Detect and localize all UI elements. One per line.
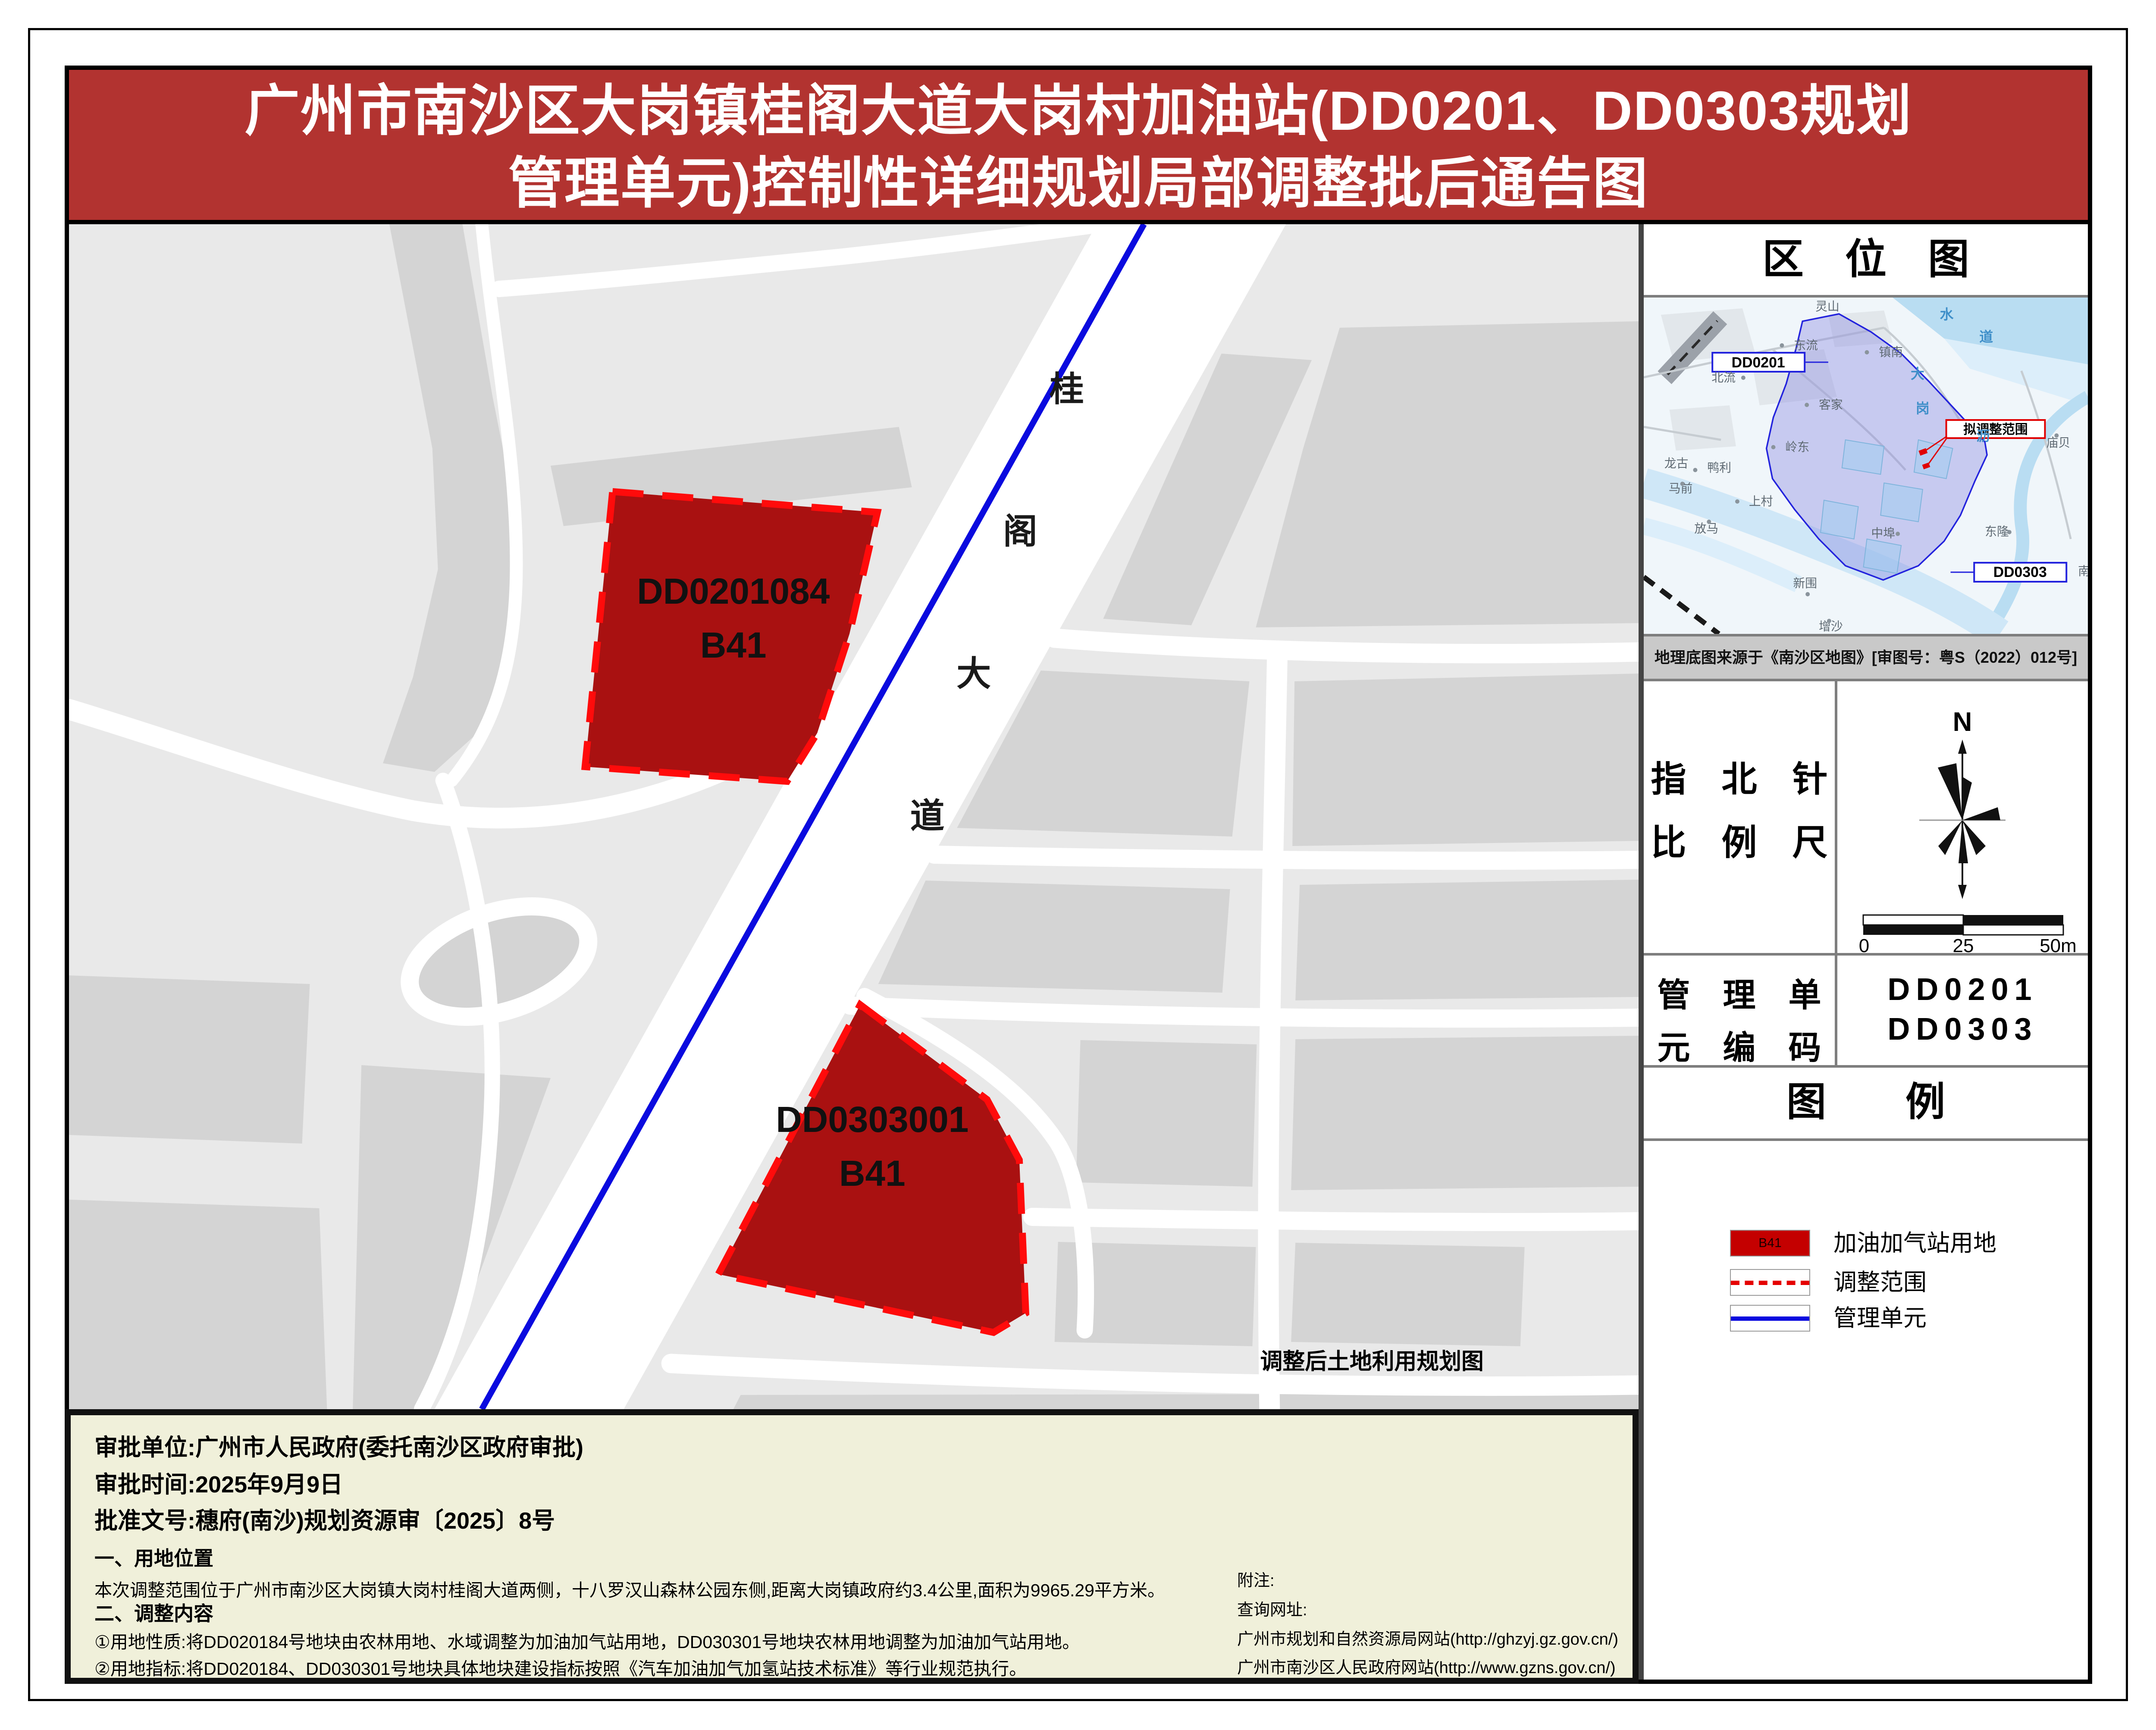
place-label: 放马 xyxy=(1694,522,1718,535)
land-use-map: DD0201084 B41 DD0303001 B41 桂 阁 大 道 调整后土… xyxy=(69,224,1639,1409)
legend-swatch-gas-station: B41 xyxy=(1730,1230,1810,1257)
north-letter: N xyxy=(1953,707,1972,737)
map-caption: 调整后土地利用规划图 xyxy=(1260,1349,1484,1374)
north-arrow-icon xyxy=(1919,740,2006,899)
road-name-char1: 桂 xyxy=(1050,370,1084,408)
notes-url-1: 广州市规划和自然资源局网站(http://ghzyj.gz.gov.cn/) xyxy=(1237,1626,1618,1649)
place-label: 南 xyxy=(2078,564,2088,578)
scale-tick-25: 25 xyxy=(1953,935,1974,953)
scale-bar xyxy=(1863,915,2063,935)
road-name-char2: 阁 xyxy=(1003,512,1037,551)
place-label: 新围 xyxy=(1793,577,1817,590)
adjust-scope-label: 拟调整范围 xyxy=(1963,423,2028,437)
legend-swatch-adjust-scope xyxy=(1730,1269,1810,1296)
management-unit-line-icon xyxy=(1731,1316,1809,1321)
land-use-map-canvas: DD0201084 B41 DD0303001 B41 桂 阁 大 道 调整后土… xyxy=(69,224,1639,1409)
unit-code-dd0303: DD0303 xyxy=(1837,1012,2088,1047)
road-name-char4: 道 xyxy=(910,797,945,835)
legend-swatch-management-unit xyxy=(1730,1305,1810,1332)
place-label: 鸭利 xyxy=(1707,461,1731,474)
legend-swatch-code: B41 xyxy=(1758,1236,1781,1250)
place-label: 岭东 xyxy=(1785,440,1809,454)
place-label: 北流 xyxy=(1711,371,1736,384)
compass-scale-section: 指 北 针 比 例 尺 N xyxy=(1644,681,2088,953)
location-map-title: 区 位 图 xyxy=(1644,224,2088,298)
management-unit-codes: DD0201 DD0303 xyxy=(1837,956,2088,1065)
water-label: 沥 xyxy=(1976,428,1990,444)
scale-label: 比 例 尺 xyxy=(1644,814,1835,865)
management-unit-section: 管 理 单 元 编 码 DD0201 DD0303 xyxy=(1644,953,2088,1065)
legend-title: 图 例 xyxy=(1644,1065,2088,1138)
location-map-canvas: DD0201 DD0303 拟调整范围 灵山 东流 镇南 北流 客家 xyxy=(1644,298,2088,634)
page-title-line1: 广州市南沙区大岗镇桂阁大道大岗村加油站(DD0201、DD0303规划 xyxy=(69,75,2088,147)
legend-label-management-unit: 管理单元 xyxy=(1833,1305,2075,1332)
basemap-source-note: 地理底图来源于《南沙区地图》[审图号：粤S（2022）012号] xyxy=(1644,634,2088,681)
legend-label-adjust-scope: 调整范围 xyxy=(1833,1269,2075,1296)
dd0303-callout-label: DD0303 xyxy=(1993,564,2047,580)
approval-info-panel: 审批单位:广州市人民政府(委托南沙区政府审批) 审批时间:2025年9月9日 批… xyxy=(65,1409,1639,1684)
announcement-sheet: 广州市南沙区大岗镇桂阁大道大岗村加油站(DD0201、DD0303规划 管理单元… xyxy=(0,0,2156,1730)
section1-body: 本次调整范围位于广州市南沙区大岗镇大岗村桂阁大道两侧，十八罗汉山森林公园东侧,距… xyxy=(94,1576,1165,1602)
place-label: 镇南 xyxy=(1879,345,1903,359)
section2-item2: ②用地指标:将DD020184、DD030301号地块具体地块建设指标按照《汽车… xyxy=(94,1654,1027,1680)
road-name-char3: 大 xyxy=(956,655,991,693)
section2-title: 二、调整内容 xyxy=(94,1598,213,1627)
compass-scale-graphics: N xyxy=(1837,681,2088,953)
place-label: 东流 xyxy=(1794,338,1818,352)
unit-code-dd0201: DD0201 xyxy=(1837,972,2088,1007)
dd0201-callout-label: DD0201 xyxy=(1732,354,1785,371)
place-label: 灵山 xyxy=(1815,300,1839,313)
parcel2-code: DD0303001 xyxy=(776,1099,968,1140)
place-label: 庙贝 xyxy=(2046,436,2070,449)
notes-subtitle: 查询网址: xyxy=(1237,1596,1307,1620)
management-unit-labels: 管 理 单 元 编 码 xyxy=(1644,956,1837,1065)
legend-label-gas-station: 加油加气站用地 xyxy=(1833,1230,2075,1257)
section2-item1: ①用地性质:将DD020184号地块由农林用地、水域调整为加油加气站用地，DD0… xyxy=(94,1627,1080,1653)
water-label: 水 xyxy=(1940,307,1954,322)
notes-url-2: 广州市南沙区人民政府网站(http://www.gzns.gov.cn/) xyxy=(1237,1654,1616,1678)
parcel1-code: DD0201084 xyxy=(637,571,830,611)
place-label: 上村 xyxy=(1749,495,1773,508)
sidebar: 区 位 图 xyxy=(1639,224,2088,1680)
water-label: 岗 xyxy=(1916,401,1930,416)
scale-ticks: 0 25 50m xyxy=(1859,935,2077,953)
approval-doc-number: 批准文号:穗府(南沙)规划资源审〔2025〕8号 xyxy=(94,1501,555,1536)
place-label: 中埠 xyxy=(1871,527,1895,540)
section1-title: 一、用地位置 xyxy=(94,1543,213,1571)
north-arrow-scalebar: N xyxy=(1837,681,2088,953)
place-label: 东隆 xyxy=(1985,525,2009,538)
adjust-scope-dash-icon xyxy=(1731,1281,1809,1285)
adjust-scope-callout: 拟调整范围 xyxy=(1946,420,2045,438)
unit-label-line2: 元 编 码 xyxy=(1644,1021,1835,1069)
frame-right-bar xyxy=(2088,66,2092,1684)
legend: B41 加油加气站用地 调整范围 管理单元 xyxy=(1644,1138,2088,1677)
place-label: 客家 xyxy=(1819,398,1843,411)
approval-date: 审批时间:2025年9月9日 xyxy=(94,1465,343,1499)
notes-title: 附注: xyxy=(1237,1567,1275,1591)
page-title: 广州市南沙区大岗镇桂阁大道大岗村加油站(DD0201、DD0303规划 管理单元… xyxy=(65,66,2092,224)
scale-tick-50: 50m xyxy=(2040,935,2077,953)
place-label: 龙古 xyxy=(1664,457,1689,470)
approval-unit: 审批单位:广州市人民政府(委托南沙区政府审批) xyxy=(94,1428,583,1462)
location-map: DD0201 DD0303 拟调整范围 灵山 东流 镇南 北流 客家 xyxy=(1644,298,2088,634)
parcel1-use: B41 xyxy=(700,625,767,665)
north-arrow-label: 指 北 针 xyxy=(1644,750,1835,802)
water-label: 大 xyxy=(1911,366,1924,382)
water-label: 道 xyxy=(1979,329,1993,345)
parcel2-use: B41 xyxy=(839,1153,906,1194)
compass-scale-labels: 指 北 针 比 例 尺 xyxy=(1644,681,1837,953)
unit-label-line1: 管 理 单 xyxy=(1644,968,1835,1016)
page-title-line2: 管理单元)控制性详细规划局部调整批后通告图 xyxy=(69,147,2088,220)
scale-tick-0: 0 xyxy=(1859,935,1869,953)
